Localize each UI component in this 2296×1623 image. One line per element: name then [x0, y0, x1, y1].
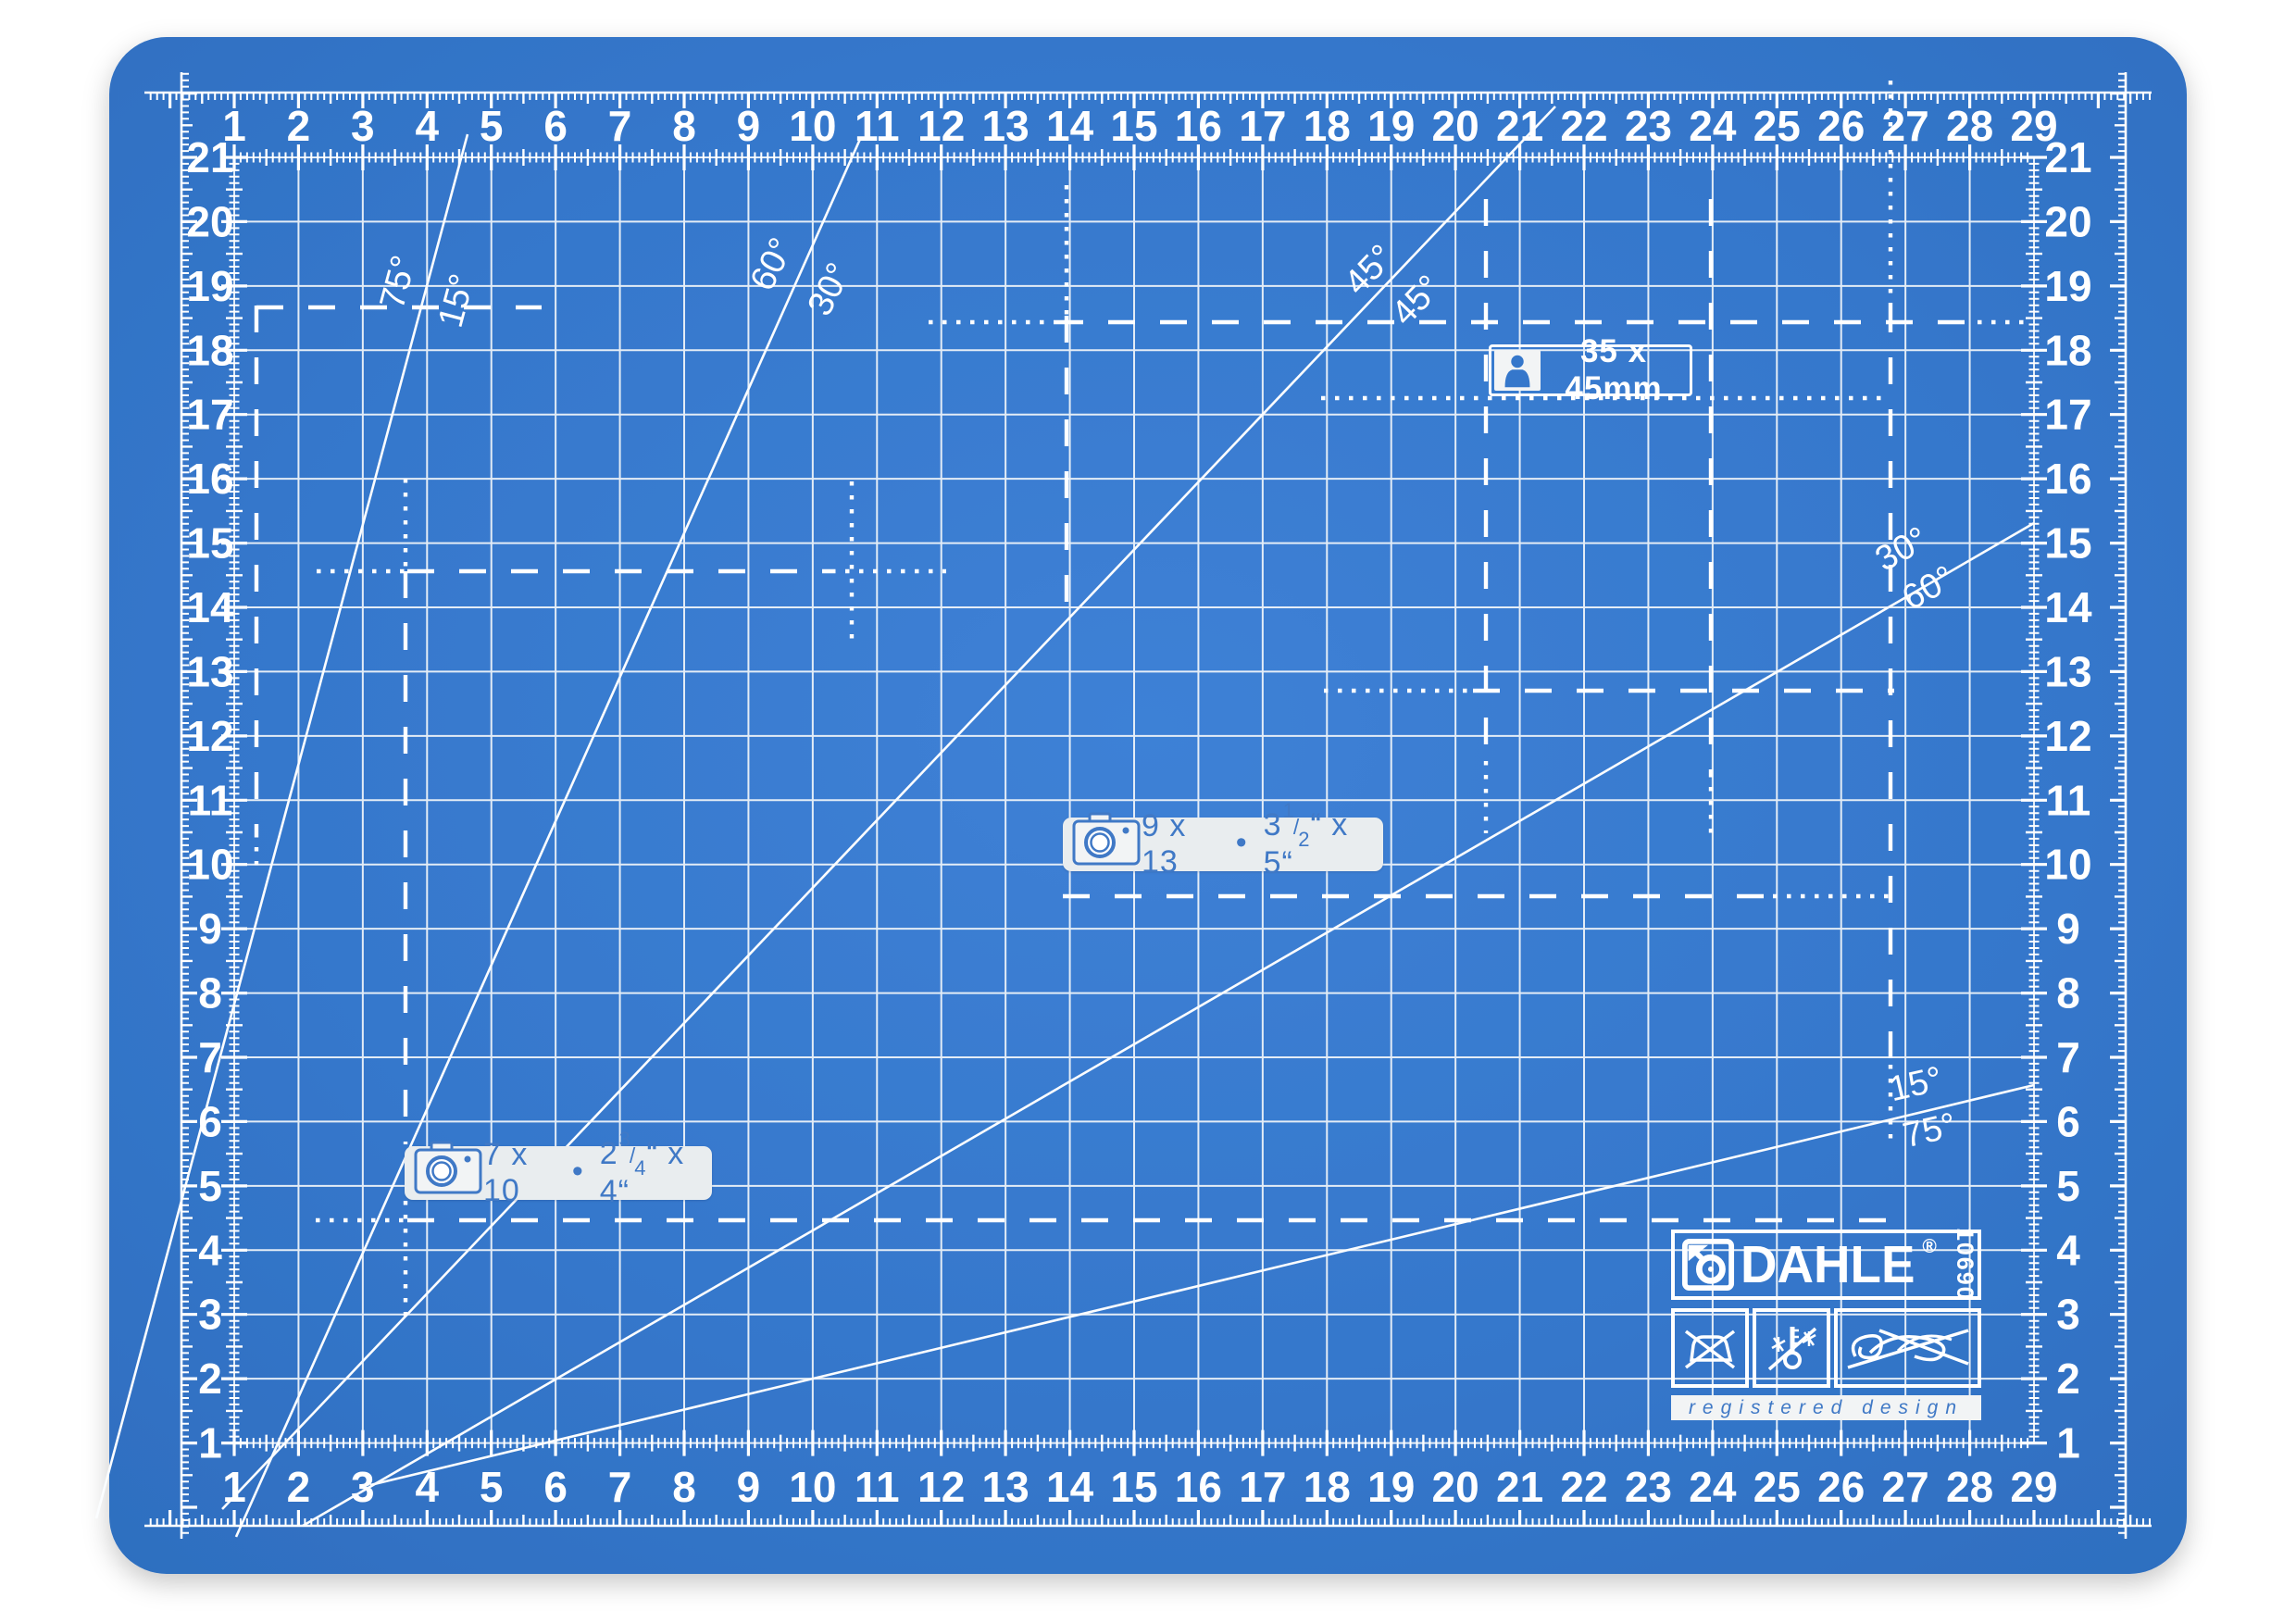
label-bullet: •: [572, 1154, 584, 1190]
ruler-number-left: 17: [186, 391, 233, 439]
ruler-number-right: 4: [2056, 1226, 2080, 1274]
model-number: 10690: [1953, 1228, 1976, 1302]
ruler-number-bottom: 8: [672, 1463, 696, 1511]
ruler-number-bottom: 1: [222, 1463, 246, 1511]
ruler-number-top: 21: [1496, 102, 1543, 150]
ruler-number-bottom: 6: [543, 1463, 568, 1511]
label-bullet: •: [1236, 825, 1248, 861]
ruler-number-right: 20: [2044, 197, 2091, 245]
ruler-number-top: 4: [415, 102, 439, 150]
ruler-number-bottom: 25: [1753, 1463, 1801, 1511]
ruler-number-left: 21: [186, 133, 233, 181]
ruler-number-top: 17: [1239, 102, 1286, 150]
brand-name: DAHLE: [1741, 1234, 1915, 1295]
ruler-number-left: 13: [186, 647, 233, 695]
registered-trademark-symbol: ®: [1922, 1236, 1936, 1258]
ruler-number-right: 12: [2044, 712, 2091, 760]
ruler-number-right: 8: [2056, 969, 2080, 1017]
photo-size-label-7x10: 7 x 10 • 23/4“ x 4“: [405, 1146, 712, 1200]
ruler-number-left: 10: [186, 841, 233, 889]
label-metric-size: 7 x 10: [483, 1137, 556, 1209]
ruler-number-top: 22: [1560, 102, 1607, 150]
ruler-number-bottom: 28: [1946, 1463, 1993, 1511]
cutting-mat-photo: 1234567891011121314151617181920212223242…: [0, 0, 2296, 1618]
ruler-number-left: 16: [186, 455, 233, 503]
ruler-number-top: 19: [1367, 102, 1415, 150]
ruler-number-top: 3: [351, 102, 375, 150]
ruler-number-right: 19: [2044, 262, 2091, 310]
ruler-number-bottom: 3: [351, 1463, 375, 1511]
ruler-number-right: 5: [2056, 1162, 2080, 1210]
registered-design-text: registered design: [1671, 1395, 1981, 1420]
ruler-number-bottom: 11: [855, 1463, 900, 1511]
ruler-number-bottom: 19: [1367, 1463, 1415, 1511]
ruler-number-top: 15: [1110, 102, 1157, 150]
ruler-number-top: 16: [1175, 102, 1222, 150]
ruler-number-top: 2: [287, 102, 311, 150]
ruler-number-top: 9: [737, 102, 761, 150]
ruler-number-bottom: 2: [287, 1463, 311, 1511]
ruler-number-right: 9: [2056, 905, 2080, 953]
ruler-number-top: 25: [1753, 102, 1801, 150]
ruler-number-bottom: 13: [982, 1463, 1029, 1511]
ruler-number-top: 26: [1817, 102, 1865, 150]
ruler-number-right: 16: [2044, 455, 2091, 503]
ruler-number-left: 12: [186, 712, 233, 760]
ruler-number-top: 20: [1432, 102, 1479, 150]
ruler-number-bottom: 14: [1046, 1463, 1094, 1511]
ruler-number-bottom: 22: [1560, 1463, 1607, 1511]
ruler-number-right: 15: [2044, 519, 2091, 568]
ruler-number-left: 20: [186, 197, 233, 245]
dahle-d-logo-icon: [1681, 1238, 1735, 1292]
ruler-number-bottom: 18: [1304, 1463, 1351, 1511]
passport-size-text: 35 x 45mm: [1541, 333, 1687, 407]
ruler-number-top: 11: [855, 102, 900, 150]
ruler-number-bottom: 12: [917, 1463, 965, 1511]
no-frost-heat-icon: [1753, 1308, 1830, 1388]
label-inch-size: 23/4“ x 4“: [600, 1136, 699, 1211]
ruler-number-bottom: 26: [1817, 1463, 1865, 1511]
ruler-number-left: 5: [198, 1162, 222, 1210]
ruler-number-left: 18: [186, 326, 233, 374]
ruler-number-bottom: 9: [737, 1463, 761, 1511]
ruler-number-top: 24: [1689, 102, 1737, 150]
label-inch-size: 31/2“ x 5“: [1264, 807, 1370, 882]
ruler-number-top: 5: [480, 102, 504, 150]
ruler-number-left: 11: [188, 776, 233, 824]
ruler-number-top: 7: [608, 102, 632, 150]
ruler-number-left: 1: [198, 1419, 222, 1467]
ruler-number-left: 7: [198, 1033, 222, 1081]
ruler-number-bottom: 29: [2010, 1463, 2057, 1511]
ruler-number-top: 10: [789, 102, 836, 150]
ruler-number-right: 7: [2056, 1033, 2080, 1081]
brand-logo-box: DAHLE ® 10690: [1671, 1230, 1981, 1300]
ruler-number-bottom: 16: [1175, 1463, 1222, 1511]
camera-icon: [413, 1139, 483, 1196]
ruler-number-right: 6: [2056, 1097, 2080, 1145]
ruler-number-right: 11: [2046, 776, 2091, 824]
ruler-number-left: 8: [198, 969, 222, 1017]
ruler-number-top: 23: [1625, 102, 1672, 150]
ruler-number-right: 13: [2044, 647, 2091, 695]
ruler-number-left: 2: [198, 1355, 222, 1403]
no-iron-icon: [1671, 1308, 1749, 1388]
label-metric-size: 9 x 13: [1142, 808, 1220, 880]
ruler-number-left: 6: [198, 1097, 222, 1145]
ruler-number-left: 15: [186, 519, 233, 568]
ruler-number-left: 14: [186, 583, 234, 631]
ruler-number-bottom: 23: [1625, 1463, 1672, 1511]
ruler-number-top: 6: [543, 102, 568, 150]
ruler-number-right: 1: [2056, 1419, 2080, 1467]
ruler-number-bottom: 5: [480, 1463, 504, 1511]
camera-icon: [1071, 810, 1142, 868]
ruler-number-left: 19: [186, 262, 233, 310]
ruler-number-bottom: 20: [1432, 1463, 1479, 1511]
passport-size-label: 35 x 45mm: [1489, 344, 1692, 396]
no-cutting-tangle-icon: [1834, 1308, 1981, 1388]
ruler-number-top: 13: [982, 102, 1029, 150]
ruler-number-bottom: 4: [415, 1463, 439, 1511]
ruler-number-top: 18: [1304, 102, 1351, 150]
brand-logo-block: DAHLE ® 10690: [1671, 1230, 1981, 1420]
ruler-number-right: 2: [2056, 1355, 2080, 1403]
passport-person-icon: [1494, 350, 1541, 391]
ruler-number-bottom: 17: [1239, 1463, 1286, 1511]
ruler-number-bottom: 10: [789, 1463, 836, 1511]
ruler-number-bottom: 24: [1689, 1463, 1737, 1511]
ruler-number-right: 14: [2044, 583, 2092, 631]
ruler-number-bottom: 21: [1496, 1463, 1543, 1511]
ruler-number-bottom: 27: [1882, 1463, 1929, 1511]
ruler-number-left: 4: [198, 1226, 222, 1274]
ruler-number-bottom: 7: [608, 1463, 632, 1511]
ruler-number-left: 3: [198, 1291, 222, 1339]
ruler-number-right: 18: [2044, 326, 2091, 374]
ruler-number-right: 21: [2044, 133, 2091, 181]
ruler-number-top: 14: [1046, 102, 1094, 150]
ruler-number-top: 8: [672, 102, 696, 150]
ruler-number-right: 3: [2056, 1291, 2080, 1339]
photo-size-label-9x13: 9 x 13 • 31/2“ x 5“: [1063, 818, 1383, 871]
ruler-number-right: 10: [2044, 841, 2091, 889]
ruler-number-bottom: 15: [1110, 1463, 1157, 1511]
ruler-number-left: 9: [198, 905, 222, 953]
inner-ruler-right-ticks: [2021, 157, 2047, 1443]
ruler-number-right: 17: [2044, 391, 2091, 439]
ruler-number-top: 12: [917, 102, 965, 150]
care-icons-row: [1671, 1308, 1981, 1388]
ruler-number-top: 27: [1882, 102, 1929, 150]
ruler-number-top: 28: [1946, 102, 1993, 150]
